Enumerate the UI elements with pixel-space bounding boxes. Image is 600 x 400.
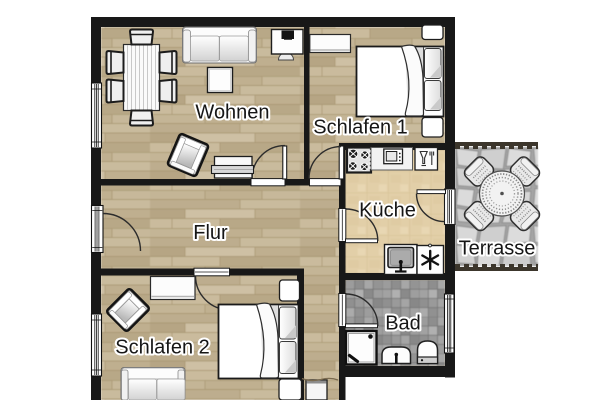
svg-text:Wohnen: Wohnen — [195, 102, 269, 124]
svg-text:Flur: Flur — [193, 222, 228, 244]
svg-text:Schlafen 2: Schlafen 2 — [115, 337, 210, 359]
svg-text:Bad: Bad — [385, 313, 421, 335]
svg-text:Schlafen 1: Schlafen 1 — [313, 117, 408, 139]
svg-text:Küche: Küche — [359, 200, 416, 222]
svg-text:Terrasse: Terrasse — [459, 238, 536, 260]
